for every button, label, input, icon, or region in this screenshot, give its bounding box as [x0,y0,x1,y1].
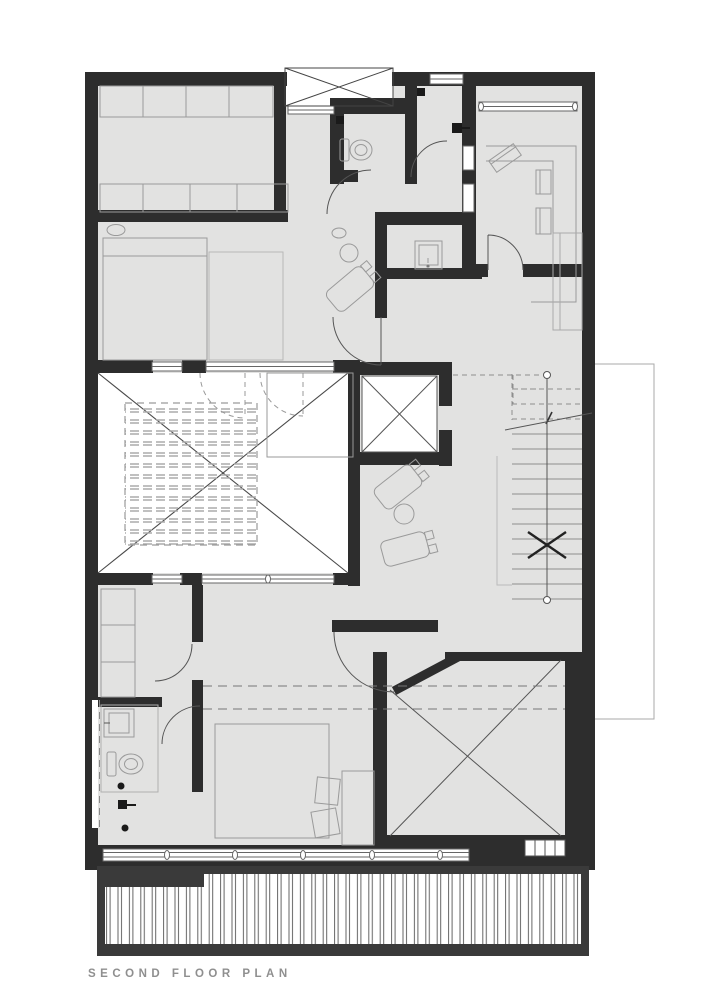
floor-plan-page: SECOND FLOOR PLAN [0,0,707,1000]
window-top-b [430,74,463,84]
window-bottom-band [103,849,469,861]
dot-bath-top [336,116,344,124]
void-hatch [125,403,257,545]
plan-caption: SECOND FLOOR PLAN [88,968,292,980]
floor-plan-drawing [0,0,707,1000]
elevator [362,376,437,452]
dot-bath3-a [118,783,125,790]
window-void-bottom [152,575,334,583]
wall-right [582,72,595,870]
window-void-top [152,362,334,371]
louver-deck [97,866,589,956]
wall-fixture [452,123,462,133]
wall-top-a [85,72,287,86]
dot-bath3-c [122,825,129,832]
window-top-skylight-sill [288,106,334,114]
dot-bath3-b [118,800,127,809]
window-study [479,102,578,111]
wall-recess [92,700,98,828]
deck-dark-band [105,874,204,887]
dot-wc [417,88,425,96]
terrace-outline [595,364,654,719]
